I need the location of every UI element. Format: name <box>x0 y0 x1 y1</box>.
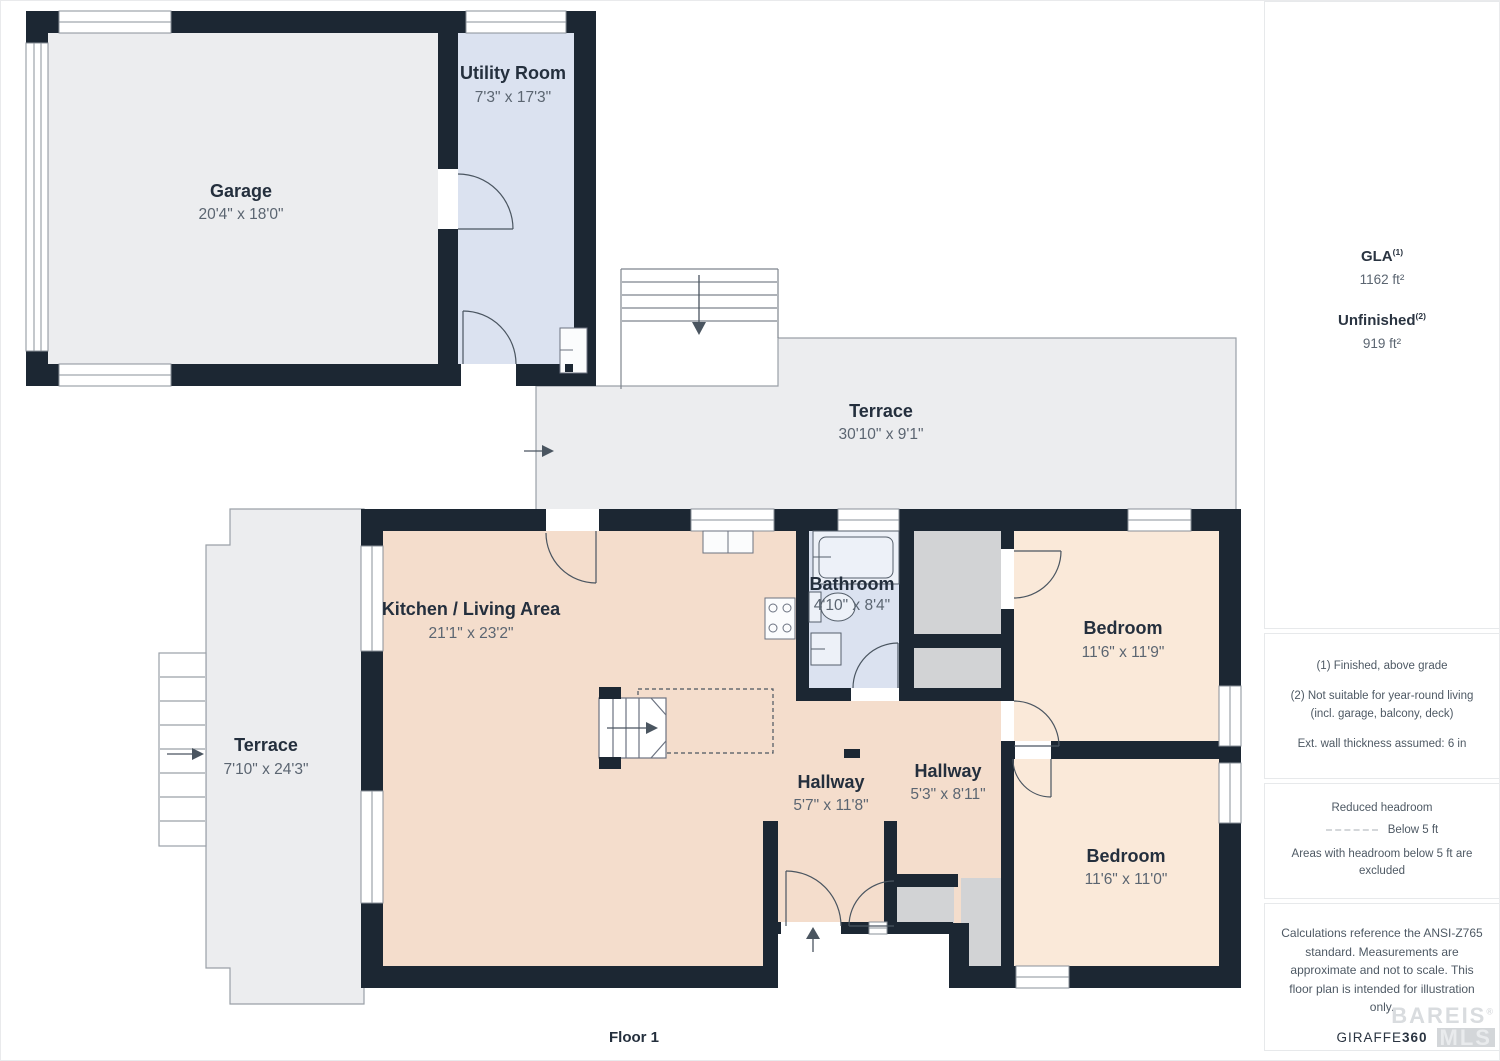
room-dims-terrace-left: 7'10" x 24'3" <box>223 761 308 778</box>
terrace-top-area <box>536 338 1236 511</box>
area-summary-card: GLA(1) 1162 ft² Unfinished(2) 919 ft² <box>1264 1 1500 629</box>
floorplan-page: Garage 20'4" x 18'0" Utility Room 7'3" x… <box>0 0 1500 1061</box>
room-dims-utility: 7'3" x 17'3" <box>475 89 551 106</box>
disclaimer-text: Calculations reference the ANSI-Z765 sta… <box>1281 924 1483 1017</box>
bath-sink-icon <box>811 633 841 665</box>
room-label-terrace-top: Terrace <box>849 401 913 421</box>
gla-footnote-marker: (1) <box>1393 247 1403 257</box>
room-label-terrace-left: Terrace <box>234 735 298 755</box>
info-sidebar: GLA(1) 1162 ft² Unfinished(2) 919 ft² (1… <box>1264 1 1500 1061</box>
room-label-kitchen: Kitchen / Living Area <box>382 599 561 619</box>
footnote-2: (2) Not suitable for year-round living (… <box>1281 688 1483 723</box>
gla-label: GLA(1) <box>1265 247 1499 265</box>
headroom-card: Reduced headroom Below 5 ft Areas with h… <box>1264 783 1500 899</box>
water-heater-icon <box>560 328 587 373</box>
headroom-note: Areas with headroom below 5 ft are exclu… <box>1287 846 1477 881</box>
room-dims-bathroom: 4'10" x 8'4" <box>814 597 890 614</box>
room-dims-hallway-small: 5'3" x 8'11" <box>910 786 985 803</box>
room-label-hallway-small: Hallway <box>914 761 981 781</box>
room-label-bedroom-bottom: Bedroom <box>1086 846 1165 866</box>
floorplan-drawing: Garage 20'4" x 18'0" Utility Room 7'3" x… <box>1 1 1266 1061</box>
headroom-legend-label: Below 5 ft <box>1388 824 1439 836</box>
room-label-hallway-main: Hallway <box>797 772 864 792</box>
terrace-left-area <box>206 509 364 1004</box>
room-dims-terrace-top: 30'10" x 9'1" <box>838 426 923 443</box>
room-label-bedroom-top: Bedroom <box>1083 618 1162 638</box>
room-dims-kitchen: 21'1" x 23'2" <box>428 625 513 642</box>
kitchen-sink-icon <box>703 531 753 553</box>
area-metrics: GLA(1) 1162 ft² Unfinished(2) 919 ft² <box>1265 247 1499 351</box>
footnotes-card: (1) Finished, above grade (2) Not suitab… <box>1264 633 1500 779</box>
left-terrace-stairs-icon <box>159 653 206 846</box>
gla-value: 1162 ft² <box>1265 272 1499 287</box>
disclaimer-card: Calculations reference the ANSI-Z765 sta… <box>1264 903 1500 1051</box>
room-dims-bedroom-top: 11'6" x 11'9" <box>1082 644 1165 661</box>
stove-icon <box>765 598 795 639</box>
unfinished-label: Unfinished(2) <box>1265 311 1499 329</box>
room-dims-bedroom-bottom: 11'6" x 11'0" <box>1085 871 1168 888</box>
unfinished-value: 919 ft² <box>1265 336 1499 351</box>
room-label-garage: Garage <box>210 181 272 201</box>
dashed-line-icon <box>1326 829 1378 831</box>
floor-label: Floor 1 <box>609 1029 659 1046</box>
room-dims-hallway-main: 5'7" x 11'8" <box>793 797 868 814</box>
headroom-legend-row: Below 5 ft <box>1279 824 1485 836</box>
unfinished-footnote-marker: (2) <box>1416 311 1426 321</box>
room-label-utility: Utility Room <box>460 63 566 83</box>
giraffe360-logo: GIRAFFE360 <box>1281 1030 1483 1045</box>
headroom-title: Reduced headroom <box>1279 802 1485 814</box>
room-label-bathroom: Bathroom <box>810 574 895 594</box>
footnote-1: (1) Finished, above grade <box>1281 658 1483 675</box>
room-dims-garage: 20'4" x 18'0" <box>198 206 283 223</box>
wall-thickness-note: Ext. wall thickness assumed: 6 in <box>1281 736 1483 753</box>
